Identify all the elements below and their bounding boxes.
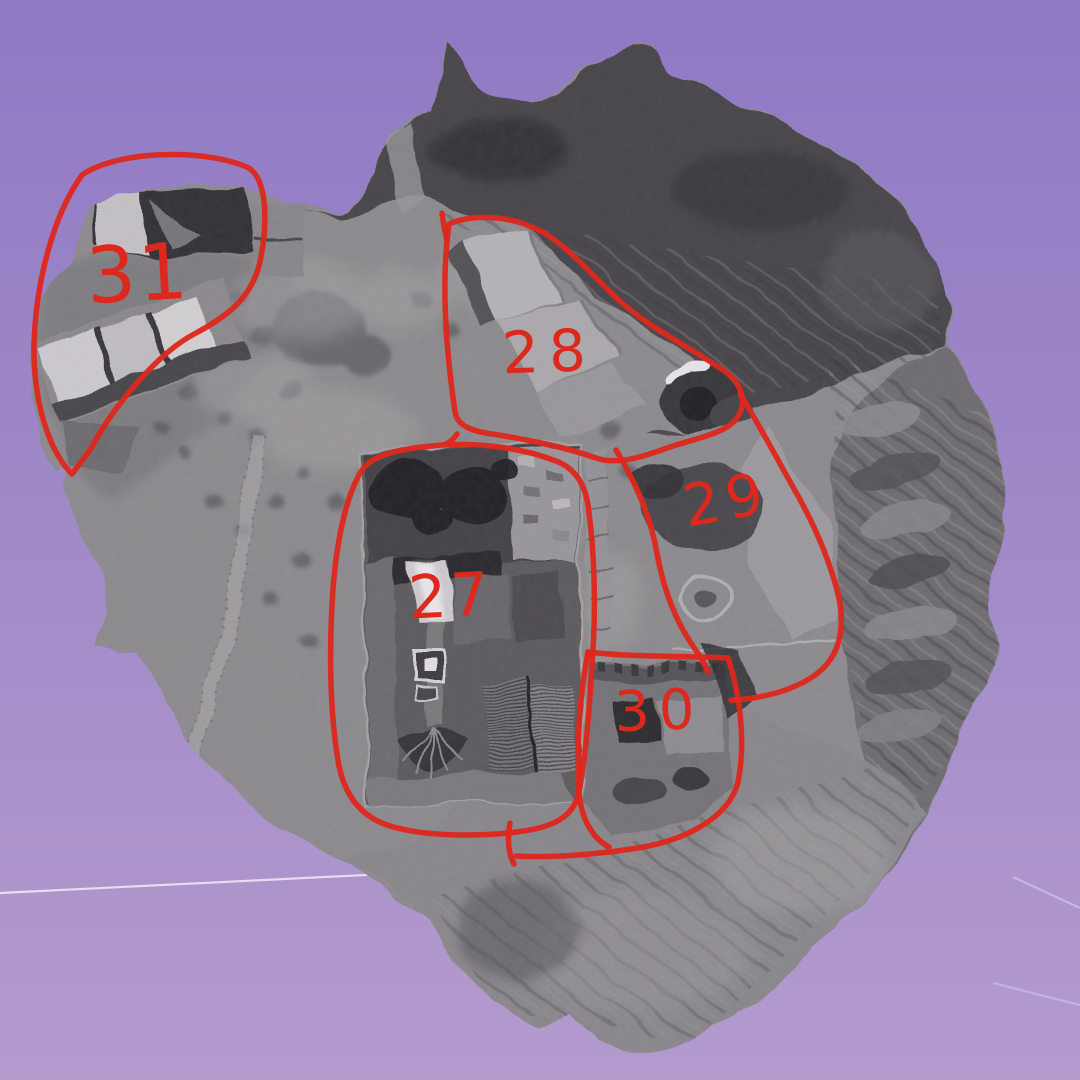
annotation-label-27: 27: [407, 559, 495, 633]
model-viewer-stage: 31 28 29 27 30: [0, 0, 1080, 1080]
model-viewport-canvas[interactable]: 31 28 29 27 30: [0, 0, 1080, 1080]
annotation-label-28: 28: [501, 316, 597, 387]
annotation-label-31: 31: [84, 227, 192, 322]
annotation-label-30: 30: [613, 677, 704, 745]
